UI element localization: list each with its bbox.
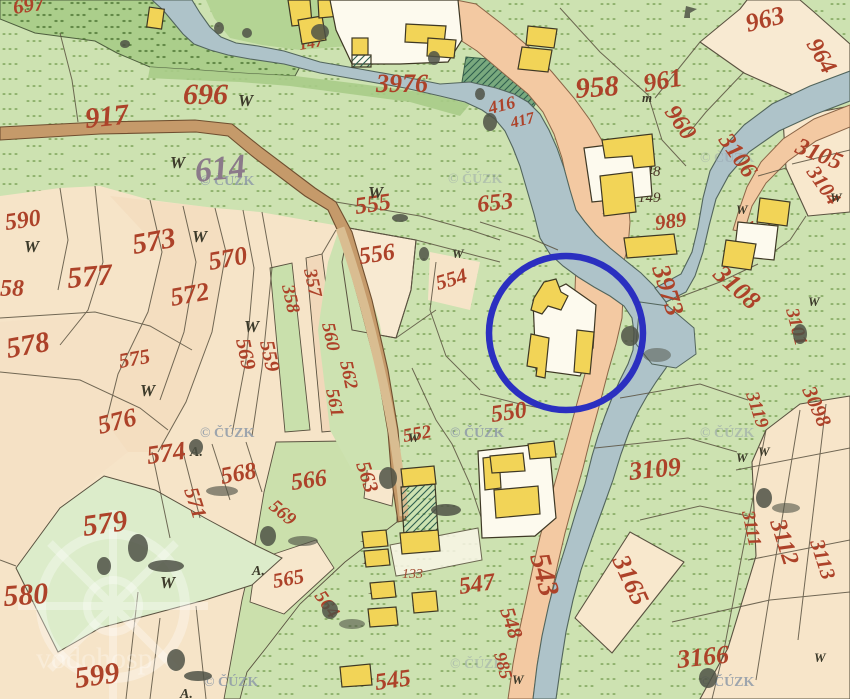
svg-text:m: m (642, 90, 652, 105)
svg-text:W: W (452, 246, 465, 261)
svg-text:W: W (160, 573, 177, 592)
svg-text:W: W (736, 450, 749, 465)
svg-text:566: 566 (289, 465, 328, 496)
svg-text:599: 599 (72, 656, 121, 695)
svg-text:W: W (814, 650, 827, 665)
svg-text:653: 653 (476, 188, 515, 218)
svg-text:A.: A. (179, 687, 193, 699)
svg-text:58: 58 (0, 276, 24, 302)
svg-text:3166: 3166 (675, 640, 731, 674)
svg-text:W: W (238, 91, 255, 110)
svg-text:989: 989 (653, 207, 688, 235)
svg-text:W: W (170, 153, 187, 172)
svg-text:133: 133 (402, 567, 423, 582)
svg-text:580: 580 (2, 577, 49, 613)
svg-text:614: 614 (193, 148, 248, 190)
svg-text:917: 917 (83, 98, 131, 135)
svg-text:© ČÚZK: © ČÚZK (204, 673, 259, 690)
svg-text:W: W (830, 190, 843, 205)
svg-text:W: W (24, 237, 41, 256)
svg-text:W: W (512, 672, 525, 687)
svg-text:W: W (140, 381, 157, 400)
svg-text:590: 590 (3, 205, 42, 236)
svg-text:696: 696 (183, 78, 228, 111)
svg-text:W: W (368, 183, 385, 202)
svg-text:A.: A. (251, 564, 265, 579)
svg-text:W: W (736, 202, 749, 217)
svg-text:3976: 3976 (375, 69, 428, 98)
svg-text:© ČÚZK: © ČÚZK (200, 424, 255, 441)
svg-text:W: W (758, 444, 771, 459)
svg-text:W: W (244, 317, 261, 336)
svg-text:W: W (408, 430, 421, 445)
svg-text:W: W (192, 227, 209, 246)
svg-text:550: 550 (489, 397, 528, 428)
svg-text:© ČÚZK: © ČÚZK (700, 424, 755, 441)
svg-text:574: 574 (145, 436, 188, 470)
svg-text:556: 556 (357, 239, 396, 270)
svg-text:545: 545 (373, 665, 412, 696)
svg-text:958: 958 (574, 70, 620, 105)
svg-text:577: 577 (66, 258, 115, 295)
svg-text:© ČÚZK: © ČÚZK (448, 170, 503, 187)
svg-text:547: 547 (457, 569, 497, 600)
svg-text:579: 579 (80, 504, 129, 543)
svg-text:3109: 3109 (627, 452, 683, 486)
svg-text:W: W (808, 294, 821, 309)
